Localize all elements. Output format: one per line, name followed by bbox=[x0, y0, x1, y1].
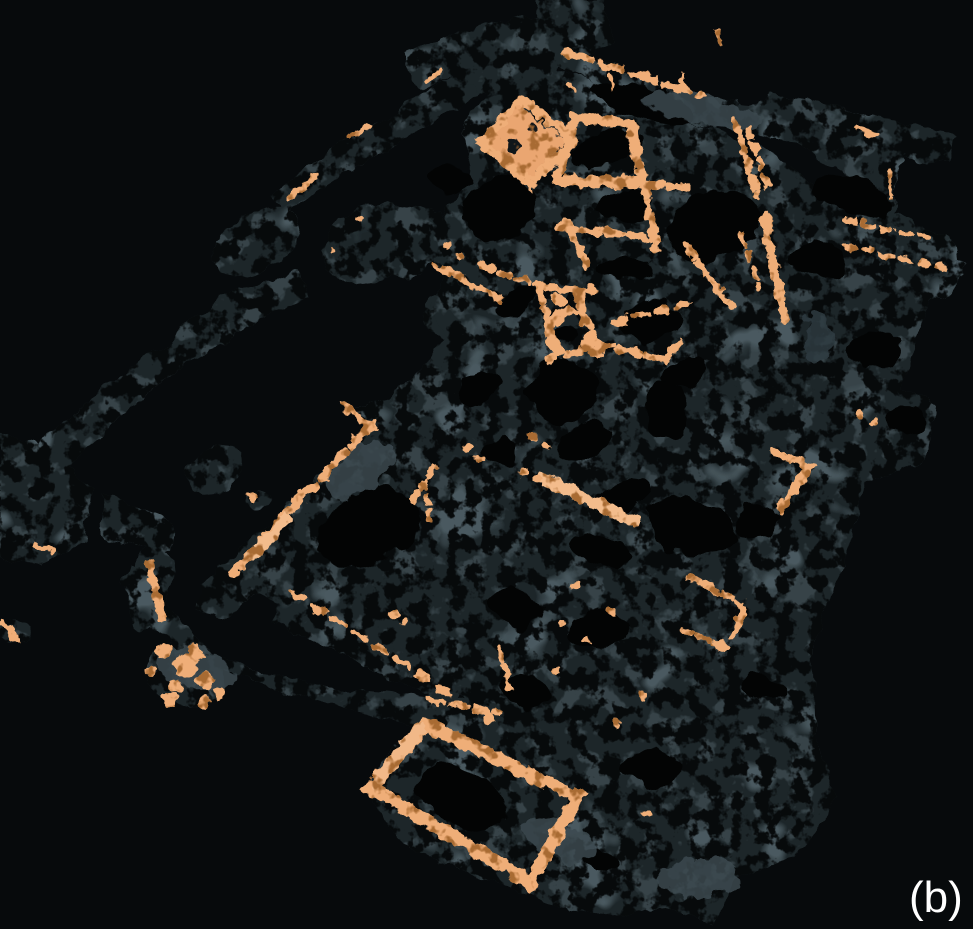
svg-text:(b): (b) bbox=[909, 873, 963, 922]
